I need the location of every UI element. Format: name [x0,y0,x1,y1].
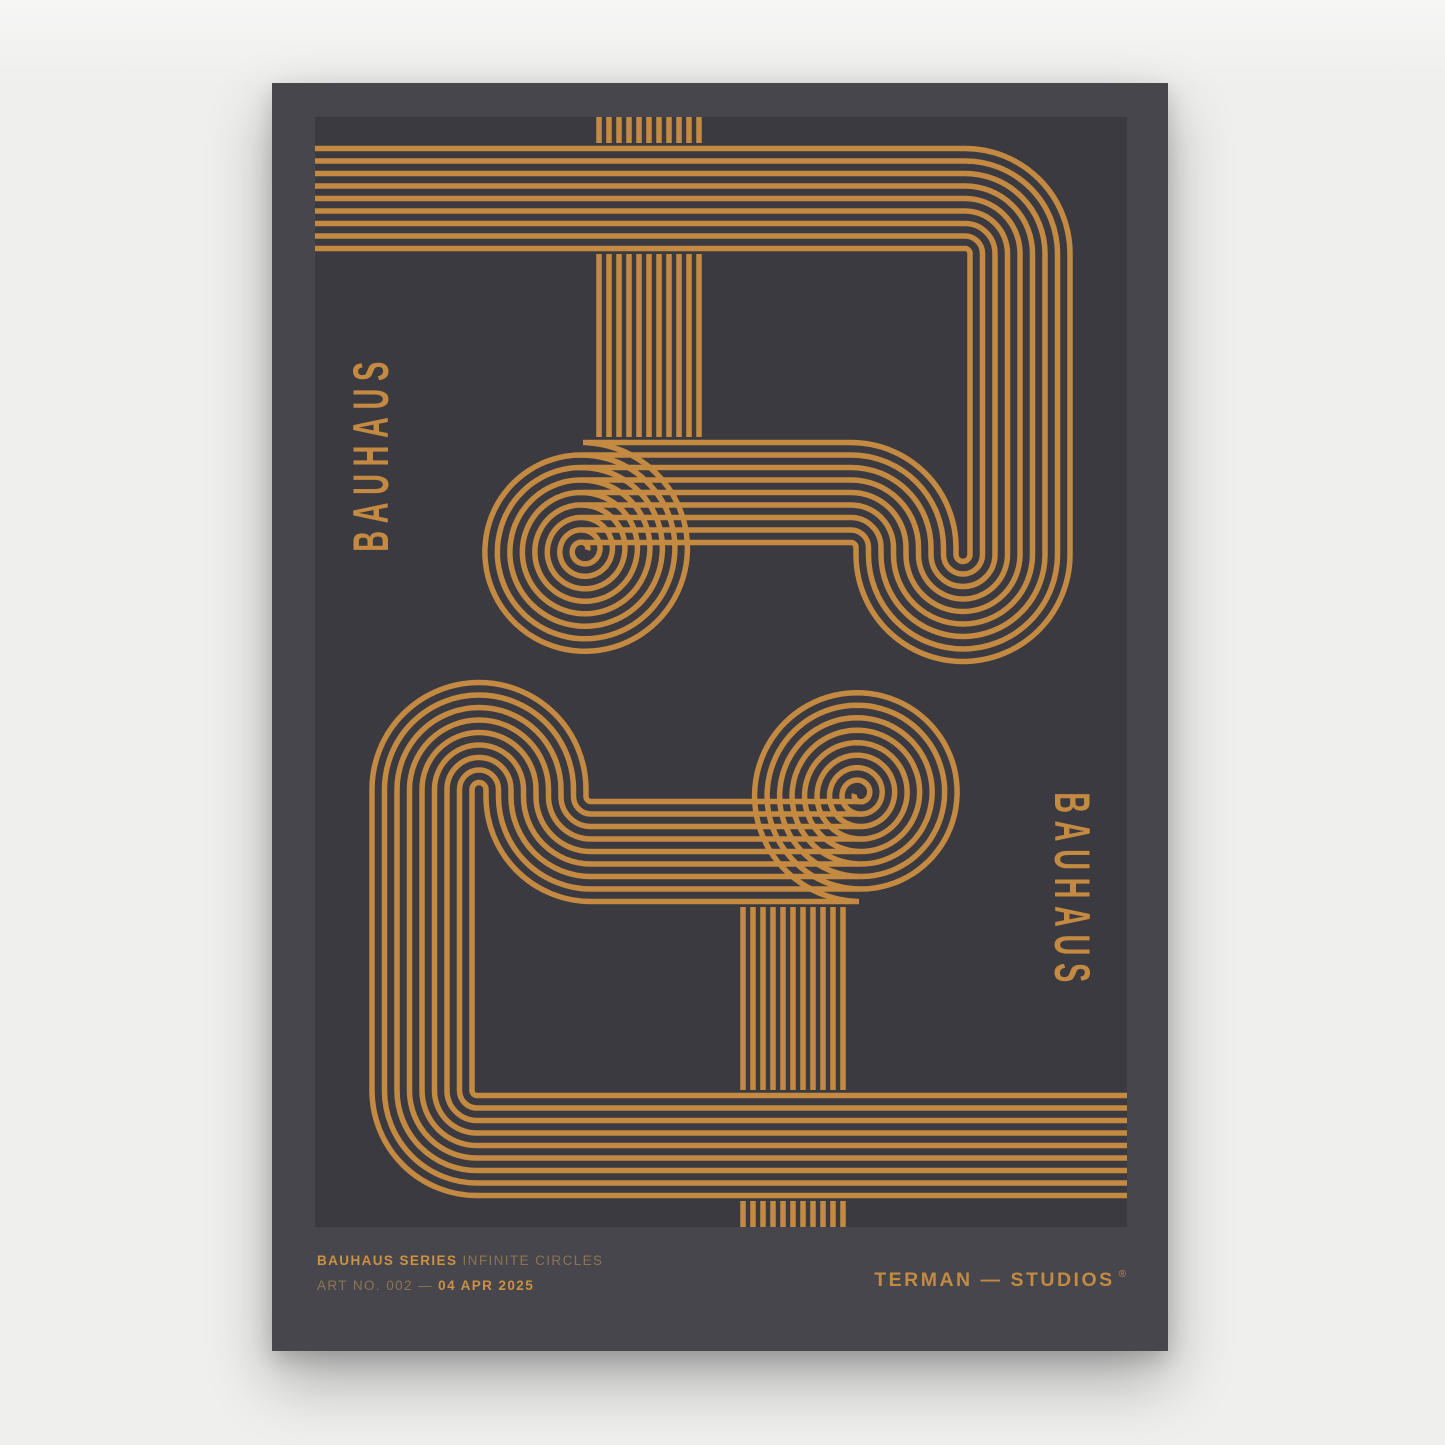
side-text-right: BAUHAUS [1047,792,1097,990]
artno-prefix: ART NO. 002 — [317,1278,433,1293]
series-line: BAUHAUS SERIES INFINITE CIRCLES [317,1249,603,1274]
poster: BAUHAUS BAUHAUS BAUHAUS SERIES INFINITE … [272,83,1168,1351]
registered-icon: ® [1119,1269,1126,1280]
scene: BAUHAUS BAUHAUS BAUHAUS SERIES INFINITE … [0,0,1445,1445]
artno-line: ART NO. 002 — 04 APR 2025 [317,1274,603,1299]
artwork-panel: BAUHAUS BAUHAUS [315,117,1127,1227]
line-artwork [315,117,1127,1227]
lower-glyph [372,683,1127,1227]
studio-mark: TERMAN — STUDIOS® [874,1269,1126,1292]
footer-meta: BAUHAUS SERIES INFINITE CIRCLES ART NO. … [317,1249,603,1299]
series-subtitle: INFINITE CIRCLES [463,1253,604,1268]
side-text-left: BAUHAUS [346,354,396,552]
upper-glyph [315,117,1070,661]
poster-footer: BAUHAUS SERIES INFINITE CIRCLES ART NO. … [317,1249,1126,1299]
tube-band [315,149,1070,662]
artno-date: 04 APR 2025 [438,1278,534,1293]
roll-spiral [755,693,958,902]
tube-band [372,683,1127,1196]
comb-stub [599,117,699,437]
comb-stub [743,907,843,1227]
studio-name: TERMAN — STUDIOS [874,1269,1114,1291]
roll-spiral [485,443,688,652]
series-title: BAUHAUS SERIES [317,1253,457,1268]
